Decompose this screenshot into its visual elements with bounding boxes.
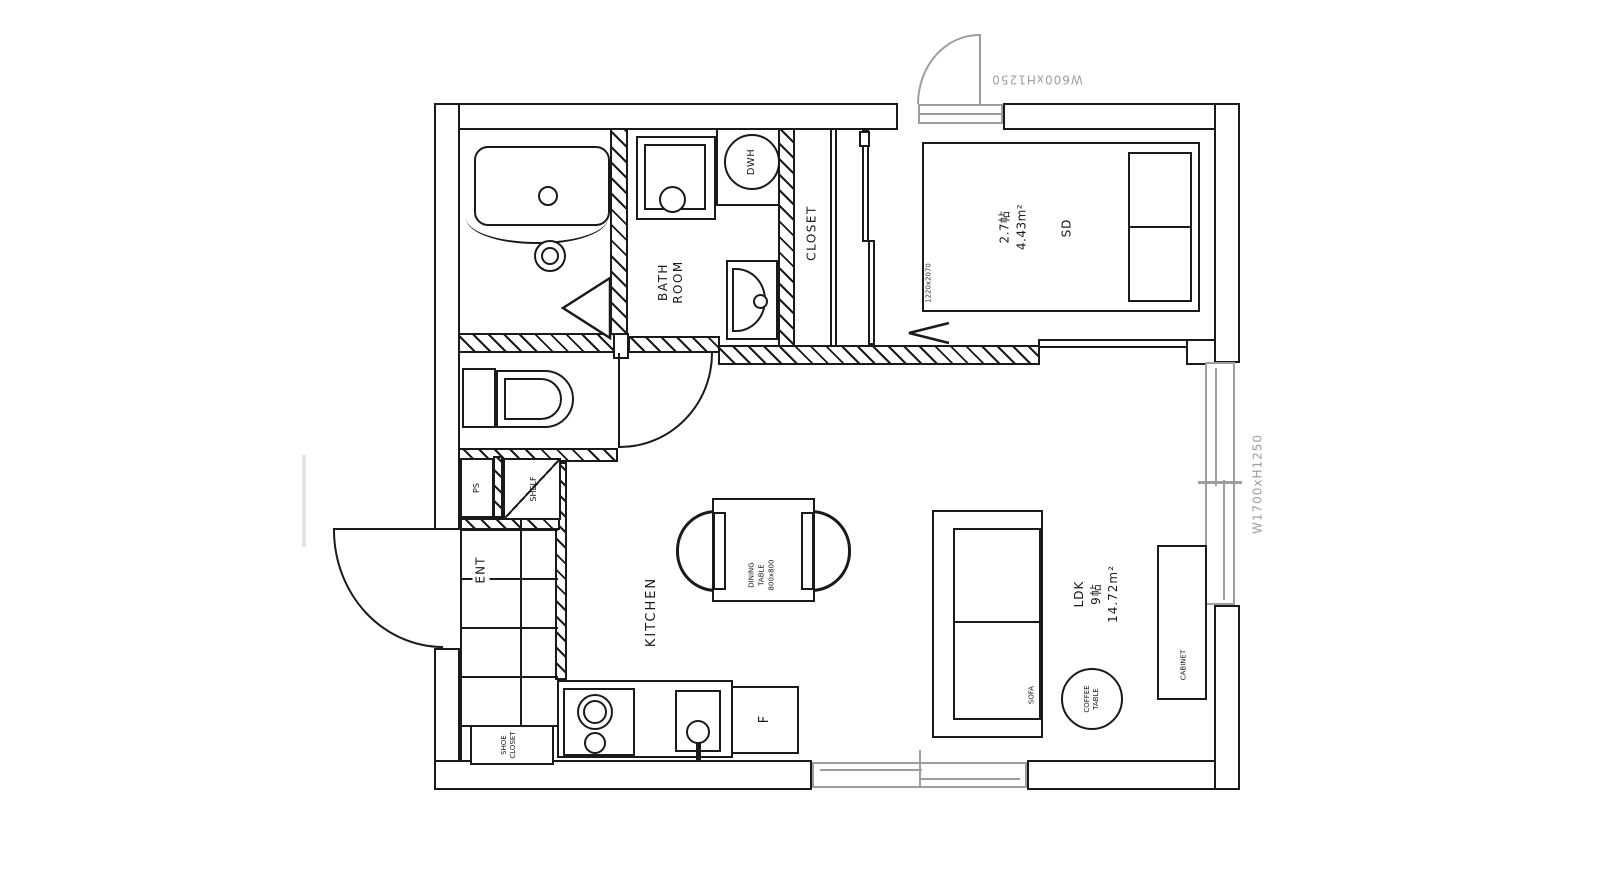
bed-size-label: 1220x2070: [925, 263, 934, 303]
ps-label: PS: [472, 483, 482, 493]
dwh-label: DWH: [746, 149, 759, 176]
bathtub-faucet: [538, 186, 558, 206]
ldk-label-m2: 14.72m²: [1104, 565, 1121, 623]
kitchen-label: KITCHEN: [644, 577, 660, 647]
wall-bottom-right: [1027, 760, 1240, 790]
coffee-table-label-line2: TABLE: [1092, 685, 1101, 712]
bathroom-label-line2: ROOM: [671, 260, 686, 304]
coffee-table-label-line1: COFFEE: [1083, 685, 1092, 712]
wall-right-upper: [1214, 103, 1240, 363]
wall-top-right: [1003, 103, 1240, 130]
wall-closet-right: [830, 128, 837, 347]
wall-top-left: [434, 103, 898, 130]
shoe-closet-label-line1: SHOE: [500, 731, 509, 758]
top-door-arc: [917, 34, 979, 104]
bathroom-label: BATH ROOM: [656, 260, 686, 304]
shoe-closet-label: SHOE CLOSET: [500, 731, 518, 758]
closet-label: CLOSET: [805, 205, 820, 261]
right-window-pane-lower: [1223, 480, 1225, 600]
shelf-label: SHELF: [529, 476, 539, 501]
bottom-window-pane-left: [820, 769, 922, 771]
coffee-table-label: COFFEE TABLE: [1083, 685, 1101, 712]
threshold-bedroom: [1038, 339, 1194, 348]
floor-plan: W600xH1250 W1700xH1250 DWH BATH ROOM PS …: [0, 0, 1600, 880]
bed-pillow-divider: [1128, 226, 1192, 228]
dining-table-label-line3: 800x800: [767, 560, 777, 591]
wall-powder-bottom: [628, 336, 720, 353]
ldk-label: LDK 9帖 14.72m²: [1071, 565, 1121, 623]
right-window-size-label: W1700xH1250: [1251, 434, 1266, 534]
bathroom-label-line1: BATH: [656, 260, 671, 304]
right-window-pane-upper: [1215, 368, 1217, 486]
bedroom-area-label: 2.7帖 4.43m²: [997, 204, 1032, 250]
artifact-line: [302, 455, 306, 547]
wall-bedroom-bottom: [718, 345, 1040, 365]
dining-chair-right: [811, 510, 851, 592]
closet-slide-panel-2: [868, 240, 875, 345]
ldk-label-name: LDK: [1071, 565, 1088, 623]
bottom-window-center-tick: [919, 750, 921, 788]
dining-table-label-line2: TABLE: [757, 560, 767, 591]
right-window-center-tick: [1198, 481, 1242, 484]
sink-faucet: [686, 720, 710, 744]
entrance-label: ENT: [473, 554, 490, 587]
top-door-leaf: [979, 34, 981, 104]
closet-slide-handle: [859, 131, 870, 147]
bedroom-area-tatami: 2.7帖: [997, 204, 1014, 250]
cabinet-label: CABINET: [1180, 650, 1189, 680]
bedroom-area-m2: 4.43m²: [1014, 204, 1031, 250]
toilet-bowl-inner: [504, 378, 562, 420]
stove-burner-small: [584, 732, 606, 754]
dining-chair-left: [676, 510, 716, 592]
wall-closet-divider: [778, 128, 795, 347]
sink-faucet-stem: [696, 742, 701, 760]
bed-label: SD: [1060, 219, 1075, 238]
shower-drain: [659, 186, 686, 213]
wall-ps-shelf-gap: [493, 456, 503, 518]
bedroom-door-chevron-icon: [903, 320, 951, 346]
dining-table-label-line1: DINING: [747, 560, 757, 591]
toilet-tank: [462, 368, 496, 428]
toilet-door-arc: [620, 353, 713, 448]
entry-door-arc: [333, 530, 443, 648]
wall-left-upper: [434, 103, 460, 530]
top-door-size-label: W600xH1250: [991, 72, 1082, 87]
bathtub-apron-arc: [466, 214, 608, 244]
dining-chair-right-back: [801, 512, 814, 590]
dining-table-label: DINING TABLE 800x800: [747, 560, 776, 591]
ldk-label-tatami: 9帖: [1088, 565, 1105, 623]
fridge-label: F: [757, 715, 773, 723]
washbasin-drain: [753, 294, 768, 309]
dining-chair-left-back: [713, 512, 726, 590]
stove-burner-large-inner: [583, 700, 607, 724]
top-door-frame-mullion: [920, 113, 1001, 115]
sofa-label: SOFA: [1028, 686, 1037, 704]
shoe-closet-label-line2: CLOSET: [509, 731, 518, 758]
wall-right-lower: [1214, 605, 1240, 790]
sofa-divider: [953, 621, 1041, 623]
bath-drain-inner: [541, 247, 559, 265]
bath-folding-door-icon: [560, 272, 614, 342]
bottom-window-pane-right: [920, 778, 1020, 780]
